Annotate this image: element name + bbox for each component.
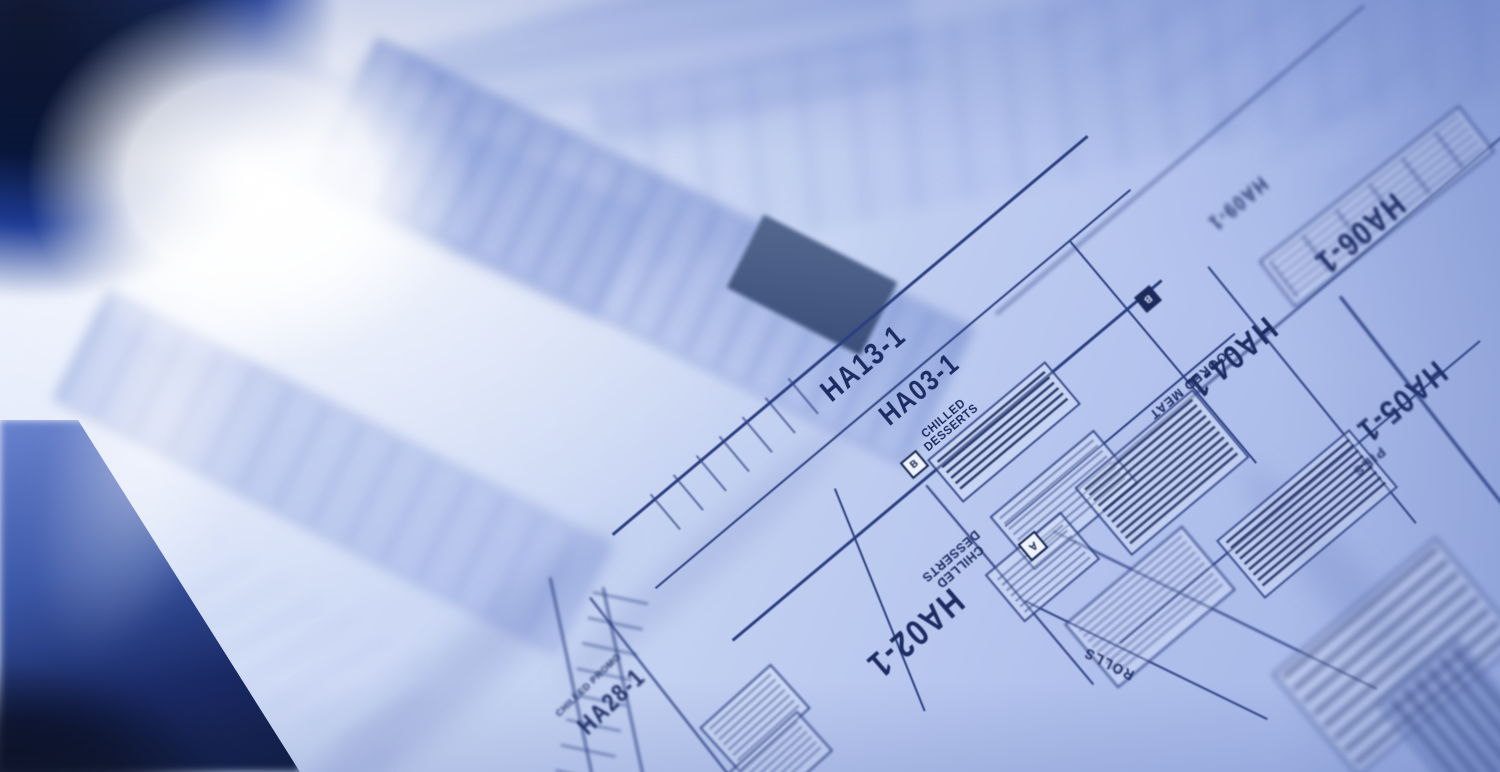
micro-text — [1084, 399, 1239, 546]
bay-category-ha02: CHILLED DESSERTS — [915, 524, 995, 598]
marker-letter: A — [1026, 539, 1040, 553]
bay-label-ha09: HA09-1 — [1203, 172, 1272, 235]
bay-label-ha02: HA02-1 — [859, 581, 971, 685]
bay-label-ha05: HA05-1 — [1350, 354, 1454, 449]
roll-bottom-dark-blob — [0, 660, 240, 772]
blueprint-photo: B A B HA13-1 HA03-1 CHILLED DESSERTS HA0… — [0, 0, 1500, 772]
marker-letter: B — [1142, 292, 1155, 305]
marker-letter: B — [908, 458, 921, 471]
marker-box-b: B — [1134, 285, 1162, 313]
